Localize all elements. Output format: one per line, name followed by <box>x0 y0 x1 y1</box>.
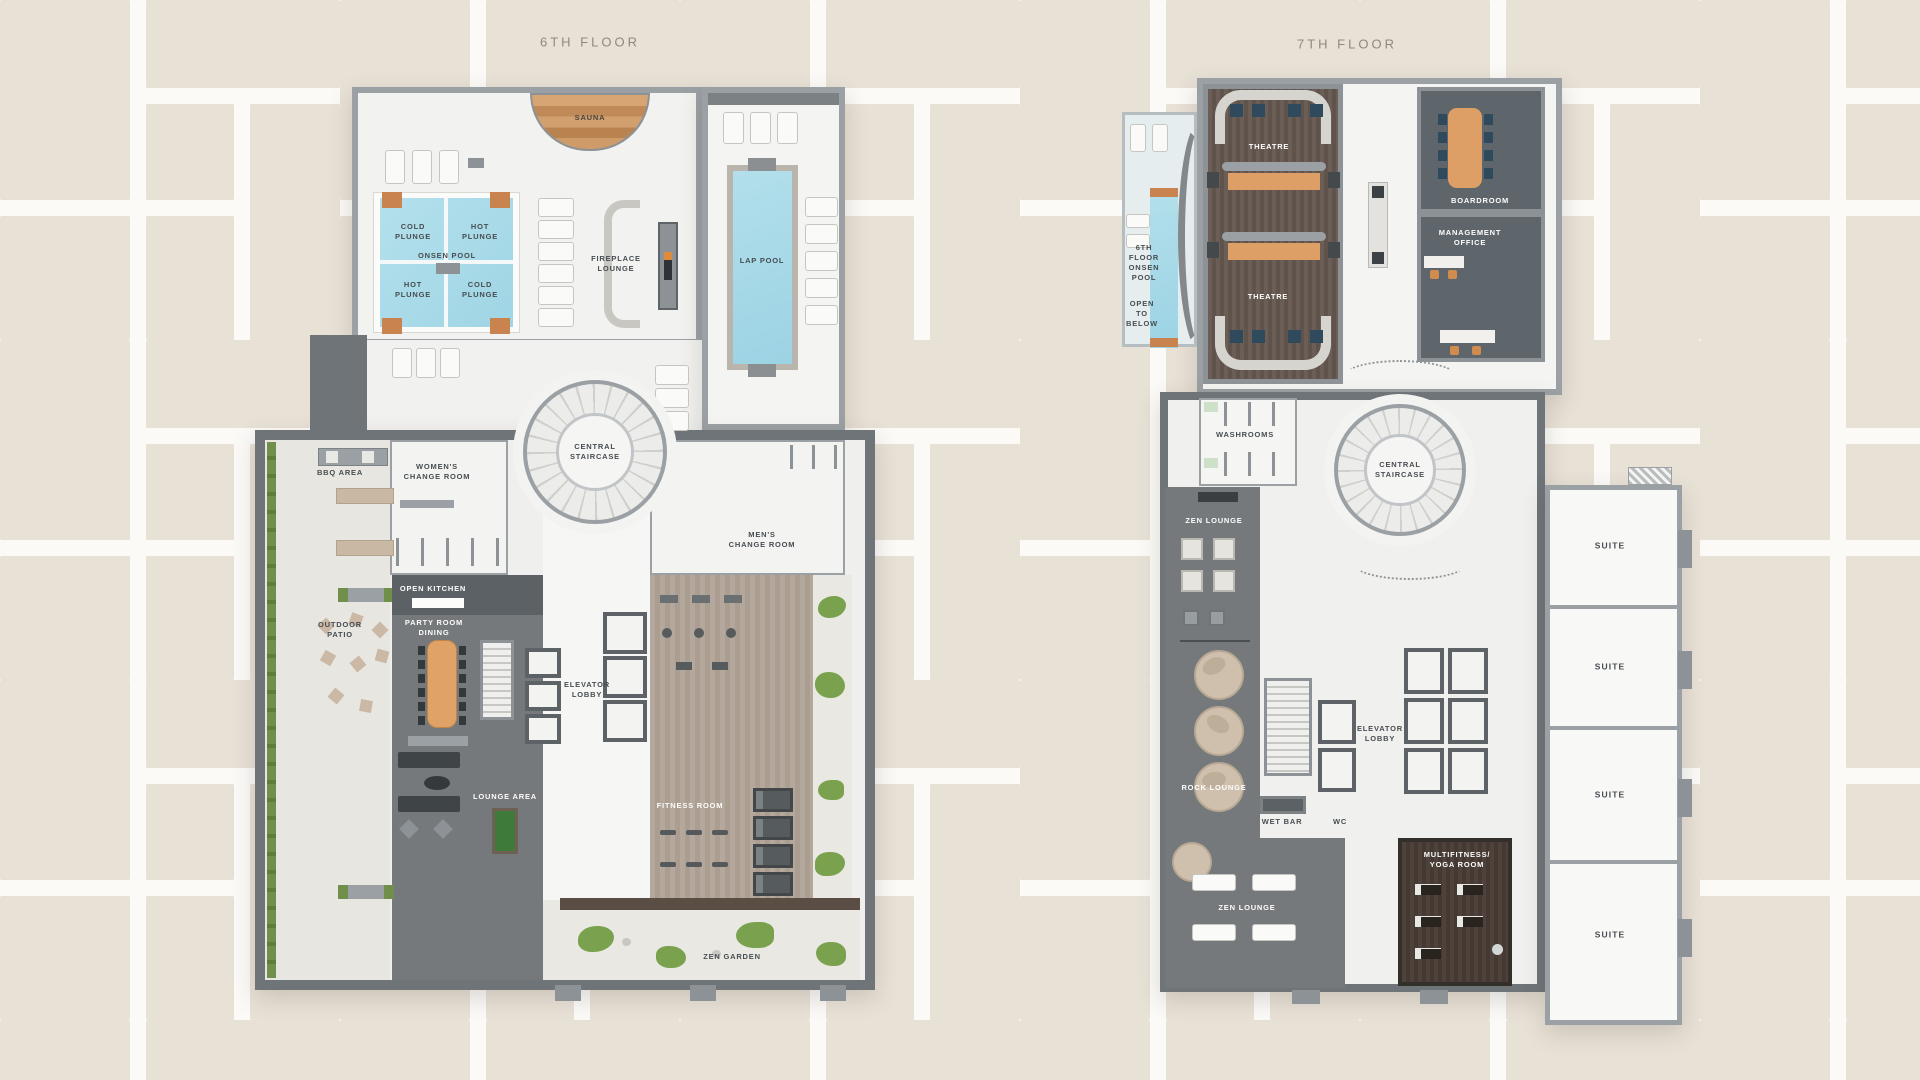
dining-chair <box>418 660 425 669</box>
office-chair <box>1450 346 1459 355</box>
suite-label: SUITE <box>1595 661 1626 672</box>
lounger <box>1152 124 1168 152</box>
elevator-shaft <box>1404 648 1444 694</box>
side-table <box>1328 242 1340 258</box>
boardroom-chair <box>1438 168 1447 179</box>
yoga-mat <box>1415 884 1441 895</box>
theatre-seat <box>1310 104 1323 117</box>
elevator-lobby-label: ELEVATOR LOBBY <box>564 680 610 700</box>
dining-chair <box>459 674 466 683</box>
bbq-grill <box>326 451 338 463</box>
island-appliance <box>1372 186 1384 198</box>
side-table <box>1207 172 1219 188</box>
suite-divider-wall <box>1548 605 1679 609</box>
theatre-bench <box>1228 243 1320 260</box>
zen-garden-label: ZEN GARDEN <box>703 952 761 962</box>
divider-line <box>1180 640 1250 642</box>
fireplace-lounge-label: FIREPLACE LOUNGE <box>591 254 641 274</box>
washroom-sink <box>1204 458 1218 468</box>
toilet-stall-divider <box>421 538 424 566</box>
treadmill <box>753 788 793 812</box>
moss-patch <box>656 946 686 968</box>
dining-chair <box>459 646 466 655</box>
toilet-stall-divider <box>790 445 793 469</box>
island-appliance <box>1372 252 1384 264</box>
onsen-step-marker <box>436 263 460 274</box>
moss-patch <box>736 922 774 948</box>
lounger <box>439 150 459 184</box>
gym-bench <box>724 595 742 603</box>
lounger <box>538 242 574 261</box>
lounger <box>538 264 574 283</box>
stall-divider <box>1248 452 1251 476</box>
dining-chair <box>459 660 466 669</box>
lounge-area-label: LOUNGE AREA <box>473 792 537 802</box>
suite-label: SUITE <box>1595 789 1626 800</box>
open-to-below-label: OPEN TO BELOW <box>1126 299 1158 329</box>
theatre-lower-label: THEATRE <box>1248 292 1288 302</box>
dining-chair <box>418 702 425 711</box>
office-desk <box>1424 256 1464 268</box>
toilet-stall-divider <box>396 538 399 566</box>
central-staircase-label: CENTRAL STAIRCASE <box>570 442 620 462</box>
boardroom-table <box>1448 108 1482 188</box>
elevator-shaft <box>1448 698 1488 744</box>
theatre-bench-back <box>1222 232 1326 241</box>
floor7-title: 7TH FLOOR <box>1297 37 1397 52</box>
wall-corner-dark <box>310 335 367 435</box>
gym-bench <box>692 595 710 603</box>
gym-machine <box>662 628 672 638</box>
stall-divider <box>1224 402 1227 426</box>
onsen-wood-corner <box>490 318 510 334</box>
boardroom-chair <box>1484 168 1493 179</box>
balcony-stub <box>1678 919 1692 957</box>
office-chair <box>1472 346 1481 355</box>
zen-walkway <box>560 898 860 910</box>
zen-rock <box>622 938 631 946</box>
exercise-ball <box>1492 944 1503 955</box>
shower-stall <box>1183 610 1199 626</box>
dining-table <box>427 640 457 728</box>
gym-machine <box>712 662 728 670</box>
stall-divider <box>1224 452 1227 476</box>
shower-stall <box>1209 610 1225 626</box>
cold-plunge-label: COLD PLUNGE <box>462 280 498 300</box>
lounger <box>805 278 838 298</box>
washrooms-label: WASHROOMS <box>1216 430 1274 440</box>
stairwell <box>1264 678 1312 776</box>
gym-machine <box>726 628 736 638</box>
treadmill <box>753 872 793 896</box>
onsen-pool-label: ONSEN POOL <box>418 251 476 261</box>
theatre-seat <box>1252 330 1265 343</box>
theatre-seat <box>1230 330 1243 343</box>
office-desk <box>1440 330 1495 343</box>
fitness-room-label: FITNESS ROOM <box>657 801 724 811</box>
patio-table-planters <box>338 588 394 602</box>
fireplace-flame <box>664 252 672 280</box>
lounger <box>750 112 771 144</box>
outdoor-patio-label: OUTDOOR PATIO <box>318 620 362 640</box>
lap-pool-label: LAP POOL <box>740 256 785 266</box>
gym-machine <box>676 662 692 670</box>
toilet-stall-divider <box>496 538 499 566</box>
elevator-shaft <box>1404 698 1444 744</box>
lounger <box>538 220 574 239</box>
patio-chair <box>359 699 373 713</box>
mens-change-room-label: MEN'S CHANGE ROOM <box>729 530 796 550</box>
elevator-shaft <box>1404 748 1444 794</box>
change-room-bench <box>400 500 454 508</box>
onsen-wood-corner <box>382 318 402 334</box>
suite-label: SUITE <box>1595 540 1626 551</box>
wall-stub <box>1292 990 1320 1004</box>
boardroom-chair <box>1438 114 1447 125</box>
lounger <box>1130 124 1146 152</box>
lounger <box>1192 874 1236 891</box>
zen-seat <box>1181 538 1203 560</box>
boardroom-label: BOARDROOM <box>1451 196 1509 206</box>
theatre-seat <box>1310 330 1323 343</box>
balcony-stub <box>1678 779 1692 817</box>
dumbbell-rack <box>686 830 702 835</box>
kitchen-counter <box>412 598 464 608</box>
onsen-wood-corner <box>382 192 402 208</box>
elevator-shaft <box>1448 648 1488 694</box>
dotted-guide-arc <box>1352 546 1468 580</box>
sofa <box>398 796 460 812</box>
floorplan-page: 6TH FLOOR SAUNA COLD PLUNGE HOT PLUNGE O… <box>0 0 1920 1080</box>
dining-chair <box>418 646 425 655</box>
onsen-open-label: 6TH FLOOR ONSEN POOL <box>1129 243 1160 284</box>
zen-lounge-lower-label: ZEN LOUNGE <box>1218 903 1275 913</box>
lounger <box>805 197 838 217</box>
lounger <box>1252 924 1296 941</box>
theatre-seat <box>1230 104 1243 117</box>
side-table <box>1207 242 1219 258</box>
lounger <box>538 308 574 327</box>
hot-plunge-label: HOT PLUNGE <box>395 280 431 300</box>
yoga-mat <box>1457 884 1483 895</box>
locker <box>416 348 436 378</box>
dining-chair <box>459 702 466 711</box>
sauna-label: SAUNA <box>575 113 606 123</box>
lounger <box>412 150 432 184</box>
rock-lounge-label: ROCK LOUNGE <box>1181 783 1246 793</box>
locker <box>655 365 689 385</box>
boardroom-chair <box>1438 132 1447 143</box>
toilet-stall-divider <box>834 445 837 469</box>
wet-bar-counter <box>1260 796 1306 814</box>
washroom-sink <box>1204 402 1218 412</box>
theatre-seat <box>1288 104 1301 117</box>
elevator-shaft <box>1318 700 1356 744</box>
treadmill <box>753 844 793 868</box>
bbq-grill <box>362 451 374 463</box>
onsen-wood-corner <box>490 192 510 208</box>
locker <box>655 388 689 408</box>
boardroom-chair <box>1484 114 1493 125</box>
sofa <box>398 752 460 768</box>
gym-bench <box>660 595 678 603</box>
open-kitchen-label: OPEN KITCHEN <box>400 584 466 594</box>
elevator-shaft <box>525 648 561 678</box>
zen-lounge-upper-label: ZEN LOUNGE <box>1185 516 1242 526</box>
hatched-jut <box>1628 467 1672 485</box>
theatre-bench-back <box>1222 162 1326 171</box>
wall-stub <box>1420 990 1448 1004</box>
multifitness-yoga-label: MULTIFITNESS/ YOGA ROOM <box>1424 850 1491 870</box>
wall-stub <box>690 985 716 1001</box>
balcony-stub <box>1678 651 1692 689</box>
boardroom-chair <box>1484 132 1493 143</box>
patio-table <box>336 540 394 556</box>
stairwell <box>480 640 514 720</box>
open-kitchen-band <box>392 575 543 615</box>
elevator-shaft <box>603 612 647 654</box>
management-office-label: MANAGEMENT OFFICE <box>1439 228 1502 248</box>
patio-table <box>336 488 394 504</box>
moss-patch <box>818 780 844 800</box>
office-chair <box>1448 270 1457 279</box>
elevator-shaft <box>1448 748 1488 794</box>
theatre-seating-shell <box>1215 90 1331 144</box>
bbq-area-label: BBQ AREA <box>317 468 363 478</box>
dumbbell-rack <box>712 862 728 867</box>
yoga-mat <box>1415 948 1441 959</box>
wet-bar-label: WET BAR <box>1262 817 1303 827</box>
yoga-mat <box>1415 916 1441 927</box>
balcony-stub <box>1678 530 1692 568</box>
suites-wing <box>1545 485 1682 1025</box>
suite-divider-wall <box>1548 860 1679 864</box>
side-table <box>1328 172 1340 188</box>
cold-plunge-label: COLD PLUNGE <box>395 222 431 242</box>
lap-pool-top-wall <box>708 93 839 105</box>
elevator-shaft <box>603 700 647 742</box>
locker <box>392 348 412 378</box>
theatre-seating-shell <box>1215 316 1331 370</box>
treadmill <box>753 816 793 840</box>
billiards-table <box>492 808 518 854</box>
theatre-seat <box>1252 104 1265 117</box>
toilet-stall-divider <box>446 538 449 566</box>
stall-divider <box>1272 452 1275 476</box>
moss-patch <box>815 672 845 698</box>
lounger <box>1192 924 1236 941</box>
planter-strip <box>267 442 276 978</box>
moss-patch <box>816 942 846 966</box>
suite-divider-wall <box>1548 726 1679 730</box>
lounger <box>805 224 838 244</box>
boardroom-chair <box>1484 150 1493 161</box>
hot-plunge-label: HOT PLUNGE <box>462 222 498 242</box>
elevator-shaft <box>525 714 561 744</box>
theatre-upper-label: THEATRE <box>1249 142 1289 152</box>
onsen-wood-edge <box>1150 188 1178 197</box>
boardroom-chair <box>1438 150 1447 161</box>
womens-change-room-label: WOMEN'S CHANGE ROOM <box>404 462 471 482</box>
wc-label: WC <box>1333 817 1347 827</box>
floor6-title: 6TH FLOOR <box>540 35 640 50</box>
theatre-seat <box>1288 330 1301 343</box>
stall-divider <box>1248 402 1251 426</box>
dining-chair <box>418 716 425 725</box>
office-chair <box>1430 270 1439 279</box>
yoga-mat <box>1457 916 1483 927</box>
lounger <box>538 286 574 305</box>
dotted-guide-arc <box>1342 360 1458 394</box>
theatre-bench <box>1228 173 1320 190</box>
suite-label: SUITE <box>1595 929 1626 940</box>
lounger <box>1126 214 1150 228</box>
toilet-stall-divider <box>812 445 815 469</box>
lap-pool-water <box>733 171 792 364</box>
lounger <box>723 112 744 144</box>
zen-seat <box>1181 570 1203 592</box>
zen-seat <box>1213 570 1235 592</box>
dumbbell-rack <box>686 862 702 867</box>
stall-divider <box>1272 402 1275 426</box>
mens-change-room <box>650 440 845 575</box>
wall-stub <box>555 985 581 1001</box>
dumbbell-rack <box>660 862 676 867</box>
wall-stub <box>820 985 846 1001</box>
party-room-dining-label: PARTY ROOM DINING <box>405 618 463 638</box>
elevator-shaft <box>1318 748 1356 792</box>
dining-chair <box>418 688 425 697</box>
dining-chair <box>459 688 466 697</box>
zen-seat <box>1213 538 1235 560</box>
locker <box>440 348 460 378</box>
dining-chair <box>418 674 425 683</box>
central-staircase-label: CENTRAL STAIRCASE <box>1375 460 1425 480</box>
lounger <box>777 112 798 144</box>
dumbbell-rack <box>660 830 676 835</box>
onsen-wood-edge <box>1150 338 1178 347</box>
elevator-lobby-label: ELEVATOR LOBBY <box>1357 724 1403 744</box>
side-table <box>468 158 484 168</box>
elevator-shaft <box>525 681 561 711</box>
lounger <box>385 150 405 184</box>
dining-chair <box>459 716 466 725</box>
dumbbell-rack <box>712 830 728 835</box>
lap-pool-entry-pad <box>748 364 776 377</box>
coffee-table <box>424 776 450 790</box>
lounger <box>805 251 838 271</box>
lounger <box>1252 874 1296 891</box>
media-console <box>408 736 468 746</box>
toilet-stall-divider <box>471 538 474 566</box>
lounger <box>805 305 838 325</box>
gym-machine <box>694 628 704 638</box>
lap-pool-entry-pad <box>748 158 776 171</box>
lounger <box>538 198 574 217</box>
shelf <box>1198 492 1238 502</box>
patio-table-planters <box>338 885 394 899</box>
